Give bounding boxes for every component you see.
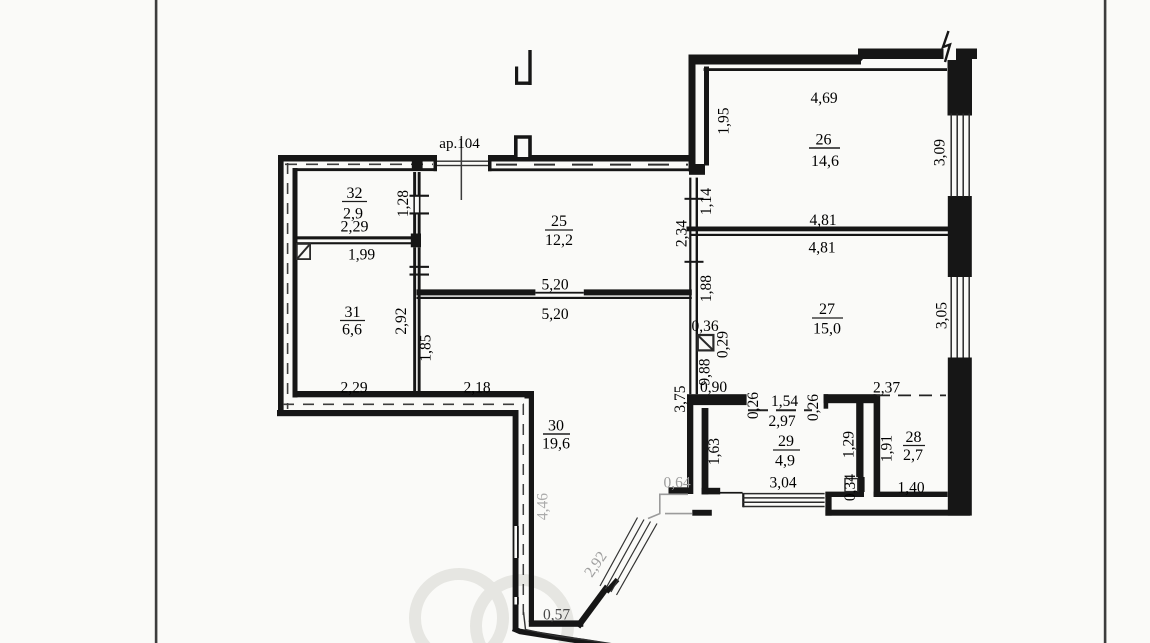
svg-text:0,34: 0,34 bbox=[842, 474, 859, 501]
svg-text:1,54: 1,54 bbox=[771, 393, 798, 410]
svg-text:3,75: 3,75 bbox=[672, 385, 689, 412]
svg-text:2,18: 2,18 bbox=[463, 380, 490, 397]
svg-text:1,14: 1,14 bbox=[698, 188, 715, 215]
svg-text:29: 29 bbox=[778, 433, 794, 450]
svg-text:ap.104: ap.104 bbox=[439, 136, 480, 152]
svg-text:2,97: 2,97 bbox=[768, 413, 795, 430]
svg-text:1,91: 1,91 bbox=[879, 435, 896, 462]
svg-text:0,26: 0,26 bbox=[805, 394, 822, 421]
svg-text:4,9: 4,9 bbox=[775, 453, 795, 470]
svg-text:25: 25 bbox=[551, 213, 567, 230]
svg-text:27: 27 bbox=[819, 301, 835, 318]
svg-text:1,88: 1,88 bbox=[698, 275, 715, 302]
svg-text:1,28: 1,28 bbox=[395, 190, 412, 217]
svg-text:0,29: 0,29 bbox=[715, 331, 732, 358]
svg-text:5,20: 5,20 bbox=[541, 306, 568, 323]
svg-text:0,26: 0,26 bbox=[745, 392, 762, 419]
svg-text:2,37: 2,37 bbox=[873, 380, 900, 397]
svg-text:3,09: 3,09 bbox=[932, 139, 949, 166]
svg-text:1,85: 1,85 bbox=[418, 334, 435, 361]
svg-text:19,6: 19,6 bbox=[542, 436, 570, 453]
svg-text:12,2: 12,2 bbox=[545, 232, 573, 249]
svg-text:2,34: 2,34 bbox=[674, 220, 691, 247]
svg-text:31: 31 bbox=[345, 304, 361, 321]
svg-text:4,81: 4,81 bbox=[809, 212, 836, 229]
svg-text:15,0: 15,0 bbox=[813, 321, 841, 338]
svg-text:28: 28 bbox=[906, 429, 922, 446]
svg-text:4,46: 4,46 bbox=[535, 493, 552, 520]
svg-text:9,88: 9,88 bbox=[697, 358, 714, 385]
svg-text:1,63: 1,63 bbox=[706, 438, 723, 465]
svg-text:5,20: 5,20 bbox=[541, 277, 568, 294]
svg-text:4,69: 4,69 bbox=[810, 90, 837, 107]
svg-text:1,99: 1,99 bbox=[348, 247, 375, 264]
svg-text:14,6: 14,6 bbox=[811, 153, 839, 170]
svg-text:0,57: 0,57 bbox=[543, 607, 570, 624]
svg-text:4,81: 4,81 bbox=[808, 240, 835, 257]
svg-text:26: 26 bbox=[816, 132, 832, 149]
svg-text:0,64: 0,64 bbox=[663, 475, 690, 492]
svg-text:2,92: 2,92 bbox=[393, 307, 410, 334]
svg-text:3,05: 3,05 bbox=[934, 302, 951, 329]
svg-text:30: 30 bbox=[548, 418, 564, 435]
svg-text:2,29: 2,29 bbox=[341, 219, 369, 236]
svg-text:3,04: 3,04 bbox=[769, 475, 796, 492]
svg-text:1,29: 1,29 bbox=[841, 431, 858, 458]
svg-text:6,6: 6,6 bbox=[342, 322, 362, 339]
svg-text:1,95: 1,95 bbox=[716, 107, 733, 134]
svg-text:2,29: 2,29 bbox=[340, 380, 367, 397]
svg-text:1,40: 1,40 bbox=[897, 480, 924, 497]
svg-text:2,7: 2,7 bbox=[903, 447, 923, 464]
svg-text:32: 32 bbox=[347, 185, 363, 202]
